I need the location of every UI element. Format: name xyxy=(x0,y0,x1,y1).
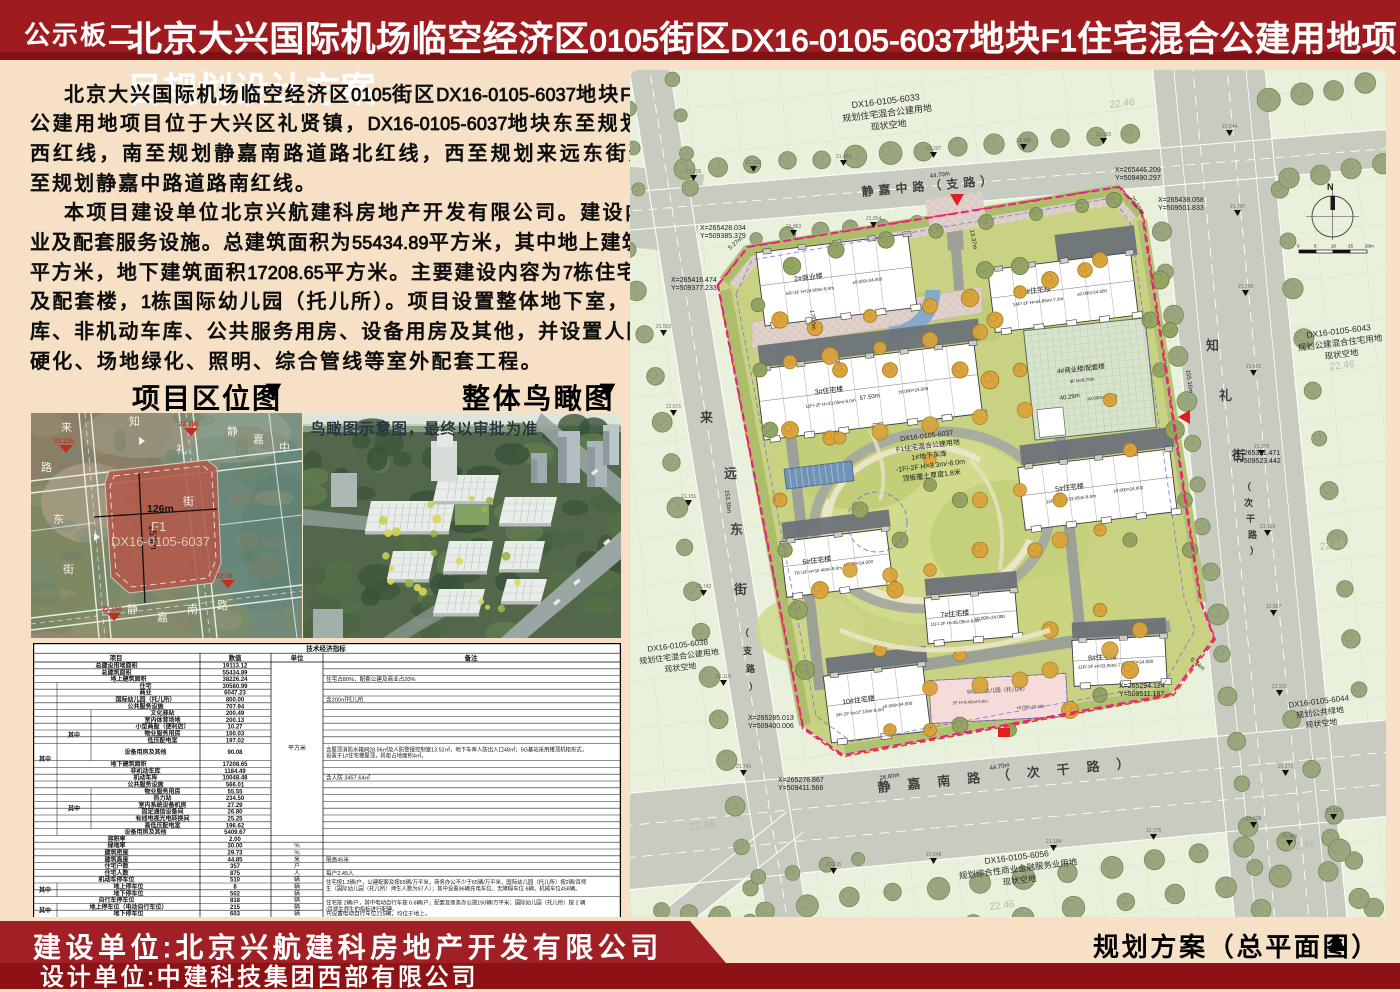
svg-text:地下建筑面积: 地下建筑面积 xyxy=(110,760,146,768)
svg-text:502: 502 xyxy=(230,891,241,897)
svg-text:21.151: 21.151 xyxy=(681,494,697,500)
svg-text:X=265428.034: X=265428.034 xyxy=(700,225,746,232)
svg-text:21.601: 21.601 xyxy=(1246,364,1262,370)
svg-text:）: ） xyxy=(749,682,758,692)
svg-text:备注: 备注 xyxy=(464,653,478,662)
svg-text:辆: 辆 xyxy=(294,876,300,884)
svg-text:米: 米 xyxy=(294,855,300,863)
svg-text:设置于1#住宅楼屋顶，机柜占地面积4㎡。: 设置于1#住宅楼屋顶，机柜占地面积4㎡。 xyxy=(326,752,427,760)
svg-text:21.469: 21.469 xyxy=(836,154,852,160)
svg-text:国际幼儿园（托儿所）: 国际幼儿园（托儿所） xyxy=(115,696,175,704)
svg-text:X=265416.474: X=265416.474 xyxy=(671,277,717,284)
svg-text:Y=509411.566: Y=509411.566 xyxy=(778,785,823,792)
svg-text:196.62: 196.62 xyxy=(226,823,245,829)
svg-text:100.03: 100.03 xyxy=(226,732,245,738)
svg-text:街: 街 xyxy=(734,582,747,597)
svg-text:辆: 辆 xyxy=(294,889,300,897)
svg-text:21.562: 21.562 xyxy=(656,324,672,330)
svg-text:辆: 辆 xyxy=(294,883,300,891)
svg-text:来: 来 xyxy=(700,410,713,425)
svg-text:200.49: 200.49 xyxy=(226,711,245,717)
svg-text:510: 510 xyxy=(230,878,241,884)
svg-text:44.85: 44.85 xyxy=(227,857,243,863)
svg-text:X=265446.209: X=265446.209 xyxy=(1115,167,1161,174)
svg-text:东: 东 xyxy=(730,522,743,537)
svg-text:21.955: 21.955 xyxy=(1096,132,1112,138)
svg-text:有线电视光电转换间: 有线电视光电转换间 xyxy=(135,815,189,823)
svg-text:19113.12: 19113.12 xyxy=(223,664,248,670)
svg-text:21.752: 21.752 xyxy=(746,160,762,166)
svg-text:875: 875 xyxy=(230,871,241,877)
svg-text:566.01: 566.01 xyxy=(226,783,245,789)
svg-text:15: 15 xyxy=(1348,244,1354,249)
svg-text:20m: 20m xyxy=(1365,244,1374,249)
svg-text:街: 街 xyxy=(63,562,74,576)
svg-text:200.13: 200.13 xyxy=(226,718,245,724)
svg-text:）: ） xyxy=(1250,546,1259,556)
svg-text:X=265285.013: X=265285.013 xyxy=(748,715,794,722)
svg-text:22.225: 22.225 xyxy=(54,438,74,445)
svg-text:22.786: 22.786 xyxy=(179,421,199,428)
svg-text:（: （ xyxy=(1242,482,1251,492)
svg-text:含屋顶消防水箱间28.56㎡及人防警报控制室13.52㎡，地: 含屋顶消防水箱间28.56㎡及人防警报控制室13.52㎡，地下车库人防出入口48… xyxy=(326,745,587,753)
svg-text:总建设用地面积: 总建设用地面积 xyxy=(95,662,137,670)
svg-text:东: 东 xyxy=(53,513,64,526)
svg-text:街: 街 xyxy=(183,494,194,508)
svg-text:文化驿站: 文化驿站 xyxy=(150,709,174,717)
svg-text:29.73: 29.73 xyxy=(227,851,243,857)
svg-text:30.00: 30.00 xyxy=(227,844,243,850)
svg-text:21.854: 21.854 xyxy=(866,216,882,222)
svg-text:5409.67: 5409.67 xyxy=(224,830,246,836)
svg-text:干: 干 xyxy=(1246,514,1255,524)
svg-text:建筑密度: 建筑密度 xyxy=(104,849,128,857)
svg-text:Y=509523.442: Y=509523.442 xyxy=(1235,458,1281,465)
svg-text:21.648: 21.648 xyxy=(926,852,942,858)
svg-text:21.236: 21.236 xyxy=(686,169,702,175)
svg-text:远: 远 xyxy=(724,466,737,481)
svg-text:地上停车位（电动自行车位）: 地上停车位（电动自行车位） xyxy=(89,903,167,911)
svg-text:27.29: 27.29 xyxy=(227,803,243,809)
svg-text:21.103: 21.103 xyxy=(1260,524,1276,530)
svg-text:人: 人 xyxy=(294,870,300,877)
svg-text:住宅按 2辆/户，其中电动自行车按 0.6辆/户；配套及商务: 住宅按 2辆/户，其中电动自行车按 0.6辆/户；配套及商务办公按150辆/万平… xyxy=(326,899,586,907)
svg-text:F1: F1 xyxy=(151,519,166,534)
svg-text:热力站: 热力站 xyxy=(153,794,171,802)
svg-text:生（国际幼儿园（托儿所）师生人数为97人）；其中设置96辆充: 生（国际幼儿园（托儿所）师生人数为97人）；其中设置96辆充电车位，无障碍车位 … xyxy=(326,885,581,893)
svg-text:17208.65: 17208.65 xyxy=(222,762,248,768)
svg-text:平方米: 平方米 xyxy=(288,744,306,752)
svg-text:物业服务用房: 物业服务用房 xyxy=(144,730,180,738)
svg-text:路: 路 xyxy=(217,599,228,612)
svg-text:21.797: 21.797 xyxy=(1230,204,1246,210)
svg-text:知: 知 xyxy=(1206,338,1219,353)
svg-text:707.94: 707.94 xyxy=(226,704,245,710)
svg-text:X=265294.124: X=265294.124 xyxy=(1119,683,1165,690)
svg-text:其中: 其中 xyxy=(68,804,80,812)
svg-text:%: % xyxy=(294,851,300,857)
svg-text:90.08: 90.08 xyxy=(227,750,243,756)
svg-text:户: 户 xyxy=(294,862,300,870)
svg-text:容积率: 容积率 xyxy=(107,835,125,843)
svg-text:含人防 3457.64㎡: 含人防 3457.64㎡ xyxy=(326,774,371,782)
svg-text:1184.49: 1184.49 xyxy=(224,769,246,775)
svg-text:21.370: 21.370 xyxy=(1254,444,1270,450)
svg-text:其中: 其中 xyxy=(39,886,51,894)
svg-text:物业服务用房: 物业服务用房 xyxy=(144,787,180,795)
svg-text:商业: 商业 xyxy=(139,689,151,697)
svg-text:总建筑面积: 总建筑面积 xyxy=(101,668,131,676)
svg-text:静: 静 xyxy=(227,424,238,438)
svg-text:嘉: 嘉 xyxy=(157,610,168,624)
svg-text:中: 中 xyxy=(279,441,290,454)
svg-text:公共服务设施: 公共服务设施 xyxy=(127,702,163,710)
svg-text:知: 知 xyxy=(129,414,140,428)
svg-text:其中: 其中 xyxy=(39,906,51,914)
svg-text:/百师生师生的指标进行配建。: /百师生师生的指标进行配建。 xyxy=(326,905,398,913)
svg-text:单位: 单位 xyxy=(291,653,304,662)
svg-text:机动车停车位: 机动车停车位 xyxy=(98,876,134,884)
svg-text:6047.23: 6047.23 xyxy=(224,691,246,697)
svg-text:21.615: 21.615 xyxy=(826,862,842,868)
svg-text:公共服务设施: 公共服务设施 xyxy=(127,781,163,789)
svg-text:地上停车位: 地上停车位 xyxy=(113,883,143,891)
svg-text:21.741: 21.741 xyxy=(736,764,752,770)
svg-text:（: （ xyxy=(740,628,749,638)
svg-text:来: 来 xyxy=(61,421,72,434)
svg-text:22.78: 22.78 xyxy=(216,573,233,580)
svg-text:嘉: 嘉 xyxy=(253,432,264,446)
svg-text:21.207: 21.207 xyxy=(926,146,942,152)
svg-text:10: 10 xyxy=(1331,244,1337,249)
svg-text:技术经济指标: 技术经济指标 xyxy=(306,644,346,653)
svg-text:26.80: 26.80 xyxy=(227,810,243,816)
svg-text:%: % xyxy=(294,844,300,850)
svg-text:Y=509511.187: Y=509511.187 xyxy=(1119,691,1164,698)
svg-text:住宅户数: 住宅户数 xyxy=(104,862,128,870)
svg-text:X=265311.471: X=265311.471 xyxy=(1235,450,1280,457)
svg-text:2.00: 2.00 xyxy=(229,837,241,843)
svg-text:Y=509501.833: Y=509501.833 xyxy=(1158,205,1204,212)
svg-text:支: 支 xyxy=(743,645,752,656)
svg-text:126m: 126m xyxy=(147,503,174,515)
svg-text:55.55: 55.55 xyxy=(227,789,243,795)
svg-text:设备用房及其他: 设备用房及其他 xyxy=(124,828,166,836)
svg-text:礼: 礼 xyxy=(176,442,187,456)
svg-text:21.742: 21.742 xyxy=(696,584,712,590)
svg-text:路: 路 xyxy=(746,663,755,674)
svg-text:10.27: 10.27 xyxy=(227,725,243,731)
svg-text:机动车库: 机动车库 xyxy=(133,774,157,782)
svg-text:DX16-0105-6037: DX16-0105-6037 xyxy=(111,534,210,549)
svg-text:23.190: 23.190 xyxy=(102,606,122,613)
svg-text:其中: 其中 xyxy=(68,731,80,739)
svg-text:低压配电室: 低压配电室 xyxy=(147,736,177,744)
svg-text:X=265276.867: X=265276.867 xyxy=(778,777,824,784)
svg-text:每户2.45人: 每户2.45人 xyxy=(326,869,354,877)
svg-text:21.167: 21.167 xyxy=(1326,808,1342,814)
svg-text:38226.24: 38226.24 xyxy=(222,677,248,683)
svg-text:设备用房及其他: 设备用房及其他 xyxy=(124,748,166,756)
svg-text:高低压配电室: 高低压配电室 xyxy=(144,821,180,829)
svg-text:197.02: 197.02 xyxy=(226,738,245,744)
svg-text:数值: 数值 xyxy=(229,653,242,662)
svg-text:鸟瞰图示意图，最终以审批为准: 鸟瞰图示意图，最终以审批为准 xyxy=(310,419,538,438)
svg-text:21.350: 21.350 xyxy=(1238,284,1254,290)
svg-text:Y=509400.006: Y=509400.006 xyxy=(748,723,794,730)
svg-text:辆: 辆 xyxy=(294,903,300,911)
svg-text:地下停车位: 地下停车位 xyxy=(113,889,143,897)
svg-text:21.119: 21.119 xyxy=(716,674,731,680)
svg-text:含200㎡托儿所: 含200㎡托儿所 xyxy=(326,696,364,704)
svg-text:21.863: 21.863 xyxy=(786,224,802,230)
svg-text:建筑高度: 建筑高度 xyxy=(104,855,128,863)
svg-text:住宅人数: 住宅人数 xyxy=(104,869,128,877)
svg-text:次: 次 xyxy=(1244,497,1253,508)
svg-text:357: 357 xyxy=(230,864,241,870)
svg-text:21.866: 21.866 xyxy=(1282,834,1298,840)
svg-text:21.775: 21.775 xyxy=(1146,828,1162,834)
svg-text:地上建筑面积: 地上建筑面积 xyxy=(110,675,146,683)
svg-text:21.171: 21.171 xyxy=(1278,764,1294,770)
svg-text:818: 818 xyxy=(230,898,241,904)
svg-text:固定通信设备间: 固定通信设备间 xyxy=(141,808,183,816)
svg-text:800.00: 800.00 xyxy=(226,698,245,704)
svg-text:N: N xyxy=(1327,182,1334,192)
svg-text:其中: 其中 xyxy=(39,755,51,763)
svg-text:21.916: 21.916 xyxy=(1272,684,1288,690)
svg-text:小型商服（便利店）: 小型商服（便利店） xyxy=(135,723,189,731)
svg-text:室内系统设备机房: 室内系统设备机房 xyxy=(138,801,186,809)
svg-text:南: 南 xyxy=(187,603,198,616)
svg-text:30580.99: 30580.99 xyxy=(222,684,248,690)
svg-text:X=265438.058: X=265438.058 xyxy=(1158,197,1204,204)
svg-text:25.25: 25.25 xyxy=(227,817,243,823)
svg-text:住宅: 住宅 xyxy=(139,682,151,690)
svg-text:Y=509377.233: Y=509377.233 xyxy=(671,285,717,292)
svg-text:路: 路 xyxy=(41,461,52,474)
svg-text:21.567: 21.567 xyxy=(1266,604,1282,610)
svg-text:绿地率: 绿地率 xyxy=(107,842,125,850)
svg-text:21.638: 21.638 xyxy=(1246,816,1262,822)
svg-text:10048.48: 10048.48 xyxy=(222,776,248,782)
svg-text:Y=509490.297: Y=509490.297 xyxy=(1115,175,1161,182)
svg-text:限高45米: 限高45米 xyxy=(326,855,349,863)
svg-text:21.485: 21.485 xyxy=(1016,138,1032,144)
svg-text:234.50: 234.50 xyxy=(226,796,245,802)
svg-text:21.194: 21.194 xyxy=(1046,839,1062,845)
svg-text:项目: 项目 xyxy=(110,653,123,662)
svg-text:辆: 辆 xyxy=(294,896,300,904)
svg-text:非机动车库: 非机动车库 xyxy=(130,767,160,775)
svg-text:21.671: 21.671 xyxy=(666,404,682,410)
svg-text:住宅占80%，配套公建及商业占20%: 住宅占80%，配套公建及商业占20% xyxy=(326,675,416,683)
svg-text:215: 215 xyxy=(230,905,241,911)
svg-text:路: 路 xyxy=(1248,529,1257,540)
svg-text:自行车停车位: 自行车停车位 xyxy=(98,896,134,904)
svg-text:礼: 礼 xyxy=(1219,388,1232,403)
svg-text:21.644: 21.644 xyxy=(1222,124,1238,130)
svg-text:住宅按1.3辆/户，公建配套及按65辆/万平米，商务办公不少: 住宅按1.3辆/户，公建配套及按65辆/万平米，商务办公不少于65辆/万平米，国… xyxy=(326,878,587,886)
svg-text:55434.89: 55434.89 xyxy=(222,670,248,676)
svg-text:室内体育场地: 室内体育场地 xyxy=(144,716,180,724)
svg-text:静: 静 xyxy=(127,602,138,616)
